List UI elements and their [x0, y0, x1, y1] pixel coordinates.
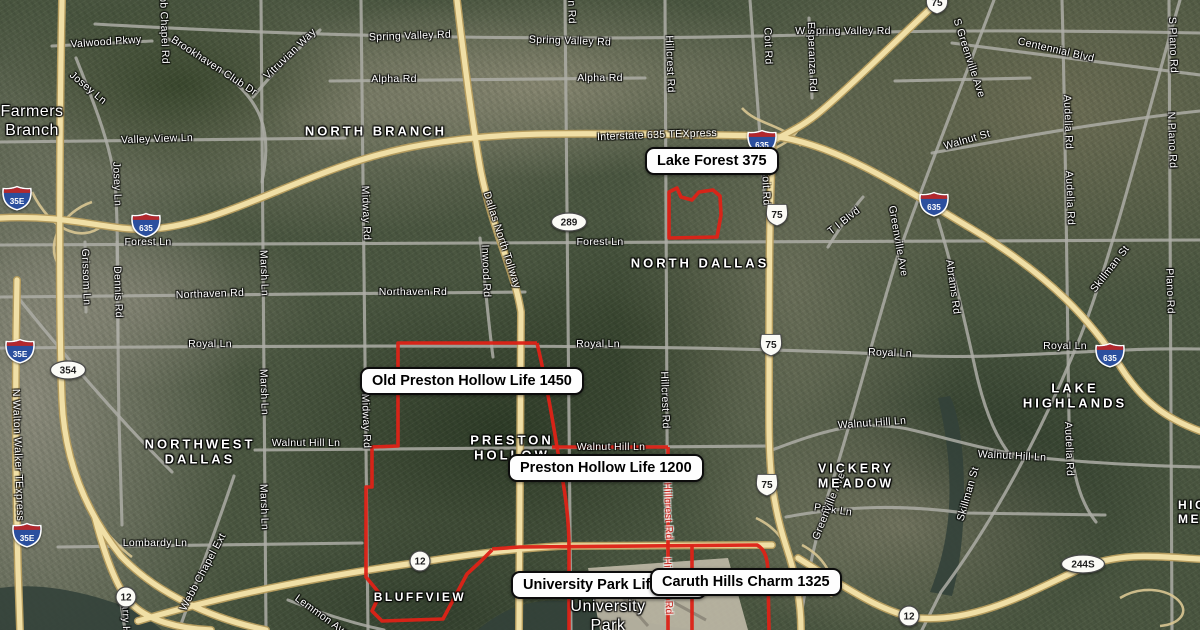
svg-text:12: 12	[120, 593, 132, 604]
road-label-grissom-ln: Grissom Ln	[79, 248, 93, 305]
road-label-marsh-ln: Marsh Ln	[257, 250, 271, 297]
svg-text:75: 75	[931, 0, 943, 9]
interstate-shield-35e: 35E	[4, 338, 37, 364]
arterial-road	[799, 0, 994, 630]
place-label-university-park: University Park	[570, 598, 645, 630]
interstate-shield-635: 635	[918, 191, 951, 217]
place-label-bluffview: BLUFFVIEW	[374, 590, 467, 604]
interstate-shield-35e: 35E	[11, 522, 44, 548]
arterial-roads	[0, 0, 1200, 630]
road-label-dennis-rd: Dennis Rd	[111, 266, 125, 318]
road-label-n-plano-rd: N Plano Rd	[1165, 111, 1179, 168]
place-label-north-dallas: NORTH DALLAS	[631, 255, 770, 270]
us-shield-75: 75	[924, 0, 951, 15]
road-label-plano-rd: Plano Rd	[1163, 268, 1177, 314]
road-label-northaven-rd: Northaven Rd	[379, 286, 447, 298]
highway-casing	[798, 556, 1200, 618]
svg-text:35E: 35E	[10, 197, 25, 206]
road-label-coit-rd: Coit Rd	[761, 27, 774, 65]
road-label-hillcrest-rd: Hillcrest Rd	[661, 482, 675, 540]
road-label-audelia-rd: Audelia Rd	[1061, 95, 1075, 150]
svg-text:75: 75	[771, 210, 783, 221]
place-label-northwest-dallas: NORTHWEST DALLAS	[145, 437, 256, 468]
road-label-royal-ln: Royal Ln	[868, 346, 912, 360]
road-label-midway-rd: Midway Rd	[359, 393, 373, 448]
road-label-preston-rd: Preston Rd	[564, 0, 578, 24]
us-shield-75: 75	[754, 473, 781, 497]
lake-forest-outline	[669, 188, 721, 238]
listing-marker-lake-forest[interactable]: Lake Forest 375	[645, 147, 779, 175]
svg-text:354: 354	[60, 366, 77, 377]
road-label-josey-ln: Josey Ln	[110, 162, 124, 207]
road-label-marsh-ln: Marsh Ln	[257, 369, 271, 416]
road-label-royal-ln: Royal Ln	[1043, 340, 1087, 352]
road-label-hillcrest-rd: Hillcrest Rd	[658, 371, 672, 429]
arterial-road	[1169, 0, 1172, 630]
loop-shield-12: 12	[409, 550, 432, 573]
svg-text:12: 12	[903, 612, 915, 623]
svg-text:635: 635	[139, 224, 153, 233]
place-label-north-branch: NORTH BRANCH	[305, 123, 447, 138]
interstate-shield-35e: 35E	[1, 185, 34, 211]
listing-marker-preston-hollow[interactable]: Preston Hollow Life 1200	[508, 454, 704, 482]
place-label-vickery-meadow: VICKERY MEADOW	[818, 461, 894, 491]
road-label-forest-ln: Forest Ln	[576, 236, 623, 248]
interstate-shield-635: 635	[130, 212, 163, 238]
place-label-farmers-branch: Farmers Branch	[0, 103, 63, 141]
us-shield-75: 75	[764, 203, 791, 227]
satellite-map[interactable]: Valwood PkwyJosey LnJosey LnBrookhaven C…	[0, 0, 1200, 630]
road-label-alpha-rd: Alpha Rd	[577, 72, 623, 84]
road-label-audelia-rd: Audelia Rd	[1063, 171, 1077, 226]
road-label-northaven-rd: Northaven Rd	[176, 287, 245, 301]
tx-shield-289: 289	[550, 212, 588, 233]
tx-shield-354: 354	[49, 360, 87, 381]
highway	[772, 136, 1200, 431]
svg-text:635: 635	[927, 203, 941, 212]
svg-text:75: 75	[761, 480, 773, 491]
listing-marker-caruth-hills[interactable]: Caruth Hills Charm 1325	[650, 568, 842, 596]
road-label-alpha-rd: Alpha Rd	[371, 73, 417, 85]
highways	[0, 0, 1200, 630]
road-label-walnut-hill-ln: Walnut Hill Ln	[577, 441, 646, 453]
us-shield-75: 75	[758, 333, 785, 357]
place-label-lake-highlands: LAKE HIGHLANDS	[1023, 381, 1127, 412]
road-label-inwood-rd: Inwood Rd	[479, 244, 493, 297]
road-label-audelia-rd: Audelia Rd	[1062, 422, 1076, 477]
svg-text:75: 75	[765, 340, 777, 351]
road-label-walnut-hill-ln: Walnut Hill Ln	[272, 437, 341, 449]
road-label-esperanza-rd: Esperanza Rd	[805, 22, 819, 93]
svg-text:35E: 35E	[20, 534, 35, 543]
road-label-lombardy-ln: Lombardy Ln	[123, 537, 188, 549]
road-label-royal-ln: Royal Ln	[188, 338, 232, 350]
listing-marker-old-preston-hollow[interactable]: Old Preston Hollow Life 1450	[360, 367, 584, 395]
svg-text:635: 635	[1103, 354, 1117, 363]
arterial-road	[261, 0, 266, 630]
tx-shield-244s: 244S	[1060, 554, 1106, 575]
road-label-marsh-ln: Marsh Ln	[257, 484, 271, 531]
svg-text:244S: 244S	[1071, 560, 1095, 571]
highway	[773, 0, 940, 141]
map-geometry	[0, 0, 1200, 630]
svg-text:35E: 35E	[13, 350, 28, 359]
loop-shield-12: 12	[115, 586, 138, 609]
road-label-s-plano-rd: S Plano Rd	[1166, 17, 1180, 74]
interstate-shield-635: 635	[1094, 342, 1127, 368]
road-label-valley-view-ln: Valley View Ln	[121, 132, 193, 147]
svg-text:289: 289	[561, 218, 578, 229]
svg-text:12: 12	[414, 557, 426, 568]
road-label-royal-ln: Royal Ln	[576, 338, 620, 350]
ramp	[1120, 590, 1183, 626]
place-label-highland-meadows: HIGHLAND MEADOWS	[1178, 498, 1200, 526]
road-label-webb-chapel-rd: Webb Chapel Rd	[157, 0, 172, 64]
road-label-hillcrest-rd: Hillcrest Rd	[663, 35, 677, 93]
loop-shield-12: 12	[898, 605, 921, 628]
road-label-midway-rd: Midway Rd	[359, 185, 373, 240]
